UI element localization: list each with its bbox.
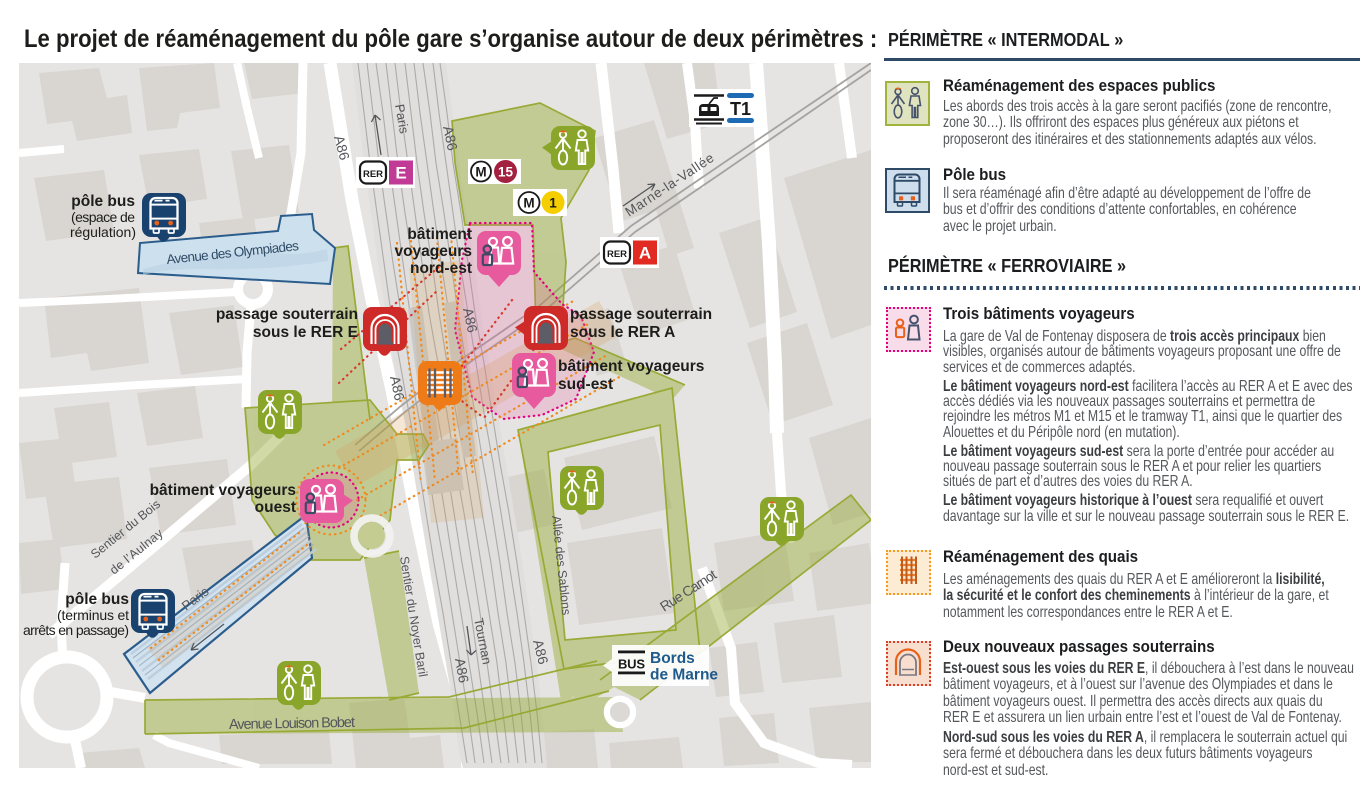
svg-text:A: A bbox=[639, 244, 651, 263]
svg-text:voyageurs: voyageurs bbox=[394, 243, 472, 260]
svg-text:bâtiment voyageurs: bâtiment voyageurs bbox=[150, 482, 296, 499]
svg-text:Bords: Bords bbox=[650, 650, 695, 667]
svg-text:(terminus et: (terminus et bbox=[57, 607, 129, 623]
svg-text:BUS: BUS bbox=[618, 657, 645, 672]
svg-text:arrêts en passage): arrêts en passage) bbox=[23, 622, 129, 638]
svg-text:T1: T1 bbox=[730, 99, 751, 119]
svg-text:passage souterrain: passage souterrain bbox=[216, 306, 358, 323]
svg-text:bâtiment: bâtiment bbox=[407, 226, 472, 243]
svg-text:Avenue Louison Bobet: Avenue Louison Bobet bbox=[229, 715, 355, 733]
svg-text:M: M bbox=[523, 196, 534, 211]
svg-text:M: M bbox=[475, 165, 486, 180]
svg-text:1: 1 bbox=[549, 196, 557, 211]
svg-text:RER: RER bbox=[363, 169, 383, 180]
svg-text:15: 15 bbox=[498, 165, 514, 180]
svg-text:pôle bus: pôle bus bbox=[65, 591, 129, 608]
svg-text:de Marne: de Marne bbox=[650, 667, 718, 684]
svg-text:passage souterrain: passage souterrain bbox=[570, 306, 712, 323]
svg-text:ouest: ouest bbox=[255, 499, 296, 516]
svg-text:E: E bbox=[395, 164, 406, 183]
svg-text:régulation): régulation) bbox=[70, 224, 136, 240]
svg-text:pôle bus: pôle bus bbox=[71, 193, 135, 210]
svg-text:nord-est: nord-est bbox=[410, 260, 472, 277]
svg-text:(espace de: (espace de bbox=[71, 209, 135, 225]
svg-text:RER: RER bbox=[607, 249, 627, 260]
svg-text:sous le RER A: sous le RER A bbox=[570, 324, 675, 341]
svg-text:bâtiment voyageurs: bâtiment voyageurs bbox=[558, 358, 704, 375]
svg-text:sud-est: sud-est bbox=[558, 376, 613, 393]
svg-text:sous le RER E: sous le RER E bbox=[253, 324, 358, 341]
